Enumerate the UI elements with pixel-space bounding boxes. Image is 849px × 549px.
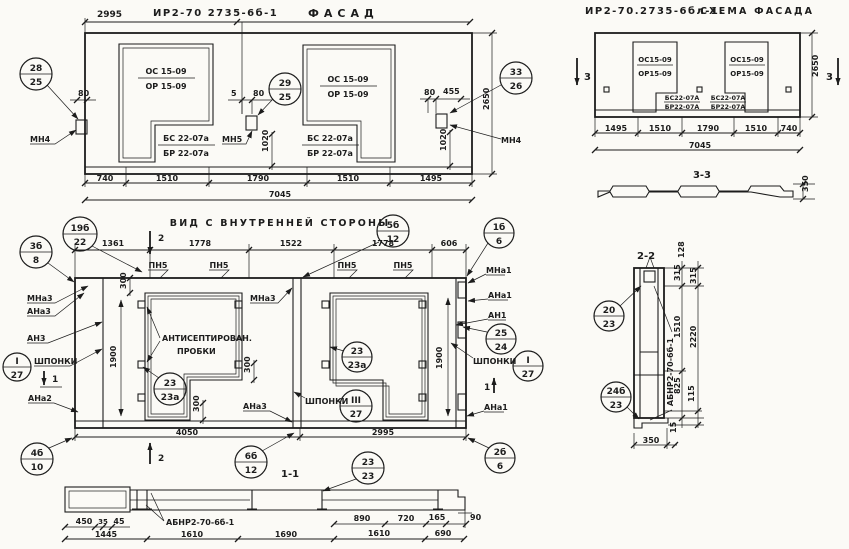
inner-dim-2995: 2995 xyxy=(372,428,395,437)
blueprint-sheet: 2995 ИР2-70 2735-6б-1 ФАСАД ОС 15-09 ОР … xyxy=(0,0,849,549)
callout-key-right: I 27 xyxy=(513,351,543,381)
schema-sill1-top: БС22-07А xyxy=(665,95,700,102)
svg-text:20: 20 xyxy=(603,306,616,316)
section2-mark-top: 2 xyxy=(158,234,164,244)
svg-text:23а: 23а xyxy=(348,361,367,371)
svg-text:6: 6 xyxy=(496,237,502,247)
dim-315-a: 315 xyxy=(673,264,682,281)
facade-sill2-mark-top: БС 22-07а xyxy=(307,134,353,143)
section-22-bar xyxy=(634,268,664,418)
dim-165: 165 xyxy=(429,513,446,522)
svg-text:I: I xyxy=(526,356,529,366)
schema-sill2-bottom: БР22-07А xyxy=(711,104,746,111)
schema-sill1-bottom: БР22-07А xyxy=(665,104,700,111)
inner-view: ВИД С ВНУТРЕННЕЙ СТОРОНЫ 1361 1778 1522 … xyxy=(3,215,543,491)
schema-win2-top: ОС15-09 xyxy=(730,56,764,64)
callout-28-25: 28 25 xyxy=(20,58,78,119)
dim-1020-right: 1020 xyxy=(439,128,448,151)
label-shponki-left: ШПОНКИ xyxy=(34,357,77,366)
dim-300-b: 300 xyxy=(243,356,252,373)
facade-top-dim: 2995 xyxy=(97,10,122,20)
facade-title: ФАСАД xyxy=(308,7,379,20)
facade-win2-mark-top: ОС 15-09 xyxy=(327,75,368,84)
dim-35: 35 xyxy=(98,518,108,526)
label-ana1-bottom: АНа1 xyxy=(484,403,508,412)
label-ana1-top: АНа1 xyxy=(488,291,512,300)
schema-anchor-1 xyxy=(604,87,609,92)
label-mna1: МНа1 xyxy=(486,266,512,275)
svg-text:23: 23 xyxy=(603,320,616,330)
inner-dim-1778a: 1778 xyxy=(189,239,212,248)
dim-128: 128 xyxy=(677,241,686,258)
facade-anchor-left-label: МН4 xyxy=(30,135,51,144)
label-ana3-mid: АНа3 xyxy=(243,402,267,411)
loop-pn5-2: ПН5 xyxy=(210,261,229,270)
facade-anchor-mid-label: МН5 xyxy=(222,135,243,144)
dim-450: 450 xyxy=(76,517,93,526)
svg-text:3б: 3б xyxy=(30,241,43,252)
label-shponki-right: ШПОНКИ xyxy=(473,357,516,366)
label-an3: АН3 xyxy=(27,334,45,343)
svg-text:10: 10 xyxy=(31,463,44,473)
svg-text:23а: 23а xyxy=(161,393,180,403)
dim-2650-facade: 2650 xyxy=(482,87,491,110)
callout-23-23a-1: 23 23а xyxy=(143,367,186,405)
svg-text:27: 27 xyxy=(350,410,363,420)
anchor-plate-right xyxy=(436,114,447,128)
dim-80-right: 80 xyxy=(424,88,436,97)
dim-720: 720 xyxy=(398,514,415,523)
facade-dim-1495: 1495 xyxy=(420,174,443,183)
loop-pn5-4: ПН5 xyxy=(394,261,413,270)
svg-text:29: 29 xyxy=(279,79,292,89)
dim-1445: 1445 xyxy=(95,530,118,539)
section-22-title: 2-2 xyxy=(637,251,655,262)
facade-window-2 xyxy=(303,45,395,162)
facade-dim-1510a: 1510 xyxy=(156,174,179,183)
label-ana3-left: АНа3 xyxy=(27,307,51,316)
dim-115: 115 xyxy=(687,385,696,402)
svg-text:28: 28 xyxy=(30,64,43,74)
svg-text:6б: 6б xyxy=(245,451,258,462)
svg-text:23: 23 xyxy=(610,401,623,411)
svg-text:19б: 19б xyxy=(71,223,90,234)
drawing-canvas: 2995 ИР2-70 2735-6б-1 ФАСАД ОС 15-09 ОР … xyxy=(0,0,849,549)
label-an1: АН1 xyxy=(488,311,507,320)
dim-1690: 1690 xyxy=(275,530,298,539)
schema-win1-top: ОС15-09 xyxy=(638,56,672,64)
schema-dim-740: 740 xyxy=(781,124,798,133)
dim-1610a: 1610 xyxy=(181,530,204,539)
anchor-plate-mid xyxy=(246,116,257,130)
dim-315-b: 315 xyxy=(689,267,698,284)
svg-text:23: 23 xyxy=(351,347,364,357)
schema-dim-7045: 7045 xyxy=(689,141,712,150)
schema-anchor-2 xyxy=(697,87,702,92)
svg-text:25: 25 xyxy=(279,93,292,103)
svg-text:12: 12 xyxy=(245,466,258,476)
facade-dim-1790: 1790 xyxy=(247,174,270,183)
dim-1900-right: 1900 xyxy=(435,346,444,369)
callout-key-left: I 27 xyxy=(3,353,31,381)
section-33-dim-350: 350 xyxy=(801,175,810,192)
section-11-mark: АБНР2-70-6б-1 xyxy=(166,517,235,527)
facade-dim-7045: 7045 xyxy=(269,190,292,199)
schema-dim-1510b: 1510 xyxy=(745,124,768,133)
svg-text:23: 23 xyxy=(164,379,177,389)
svg-text:12: 12 xyxy=(387,235,400,245)
svg-text:22: 22 xyxy=(74,238,87,248)
svg-text:26: 26 xyxy=(510,82,523,92)
label-shponki-mid: ШПОНКИ xyxy=(305,397,348,406)
schema-dim-1790: 1790 xyxy=(697,124,720,133)
facade-view: 2995 ИР2-70 2735-6б-1 ФАСАД ОС 15-09 ОР … xyxy=(20,7,532,203)
svg-text:III: III xyxy=(351,396,361,406)
dim-2220: 2220 xyxy=(689,325,698,348)
section-33-profile xyxy=(598,186,793,197)
dim-350-sec22: 350 xyxy=(643,436,660,445)
facade-win1-mark-top: ОС 15-09 xyxy=(145,67,186,76)
callout-2b-6: 2б 6 xyxy=(468,438,515,473)
dim-455: 455 xyxy=(443,87,460,96)
schema-view: ИР2-70.2735-6бл-1. СХЕМА ФАСАДА ОС15-09 … xyxy=(577,5,838,202)
section-22: 2-2 20 23 24б 23 АБНР2-70-6б-1 128 315 3… xyxy=(594,241,704,449)
section-22-mark: АБНР2-70-6б-1 xyxy=(665,337,675,406)
facade-window-1 xyxy=(119,44,213,162)
label-mna3-left: МНа3 xyxy=(27,294,53,303)
inner-dim-1522: 1522 xyxy=(280,239,302,248)
dim-1610b: 1610 xyxy=(368,529,391,538)
svg-text:I: I xyxy=(15,357,18,367)
dim-690: 690 xyxy=(435,529,452,538)
facade-dim-1510b: 1510 xyxy=(337,174,360,183)
edge-plate-3 xyxy=(458,394,466,410)
label-mna3-mid: МНа3 xyxy=(250,294,276,303)
facade-sill2-mark-bottom: БР 22-07а xyxy=(307,149,353,158)
schema-title: СХЕМА ФАСАДА xyxy=(700,6,814,17)
schema-dim-1495: 1495 xyxy=(605,124,628,133)
label-ana2: АНа2 xyxy=(28,394,52,403)
svg-text:27: 27 xyxy=(522,370,535,380)
frame-profiles xyxy=(132,490,443,509)
section2-mark-bottom: 2 xyxy=(158,454,164,464)
svg-text:33: 33 xyxy=(510,68,523,78)
section1-mark-left: 1 xyxy=(52,375,58,385)
dim-80-mid: 80 xyxy=(253,89,265,98)
svg-text:25: 25 xyxy=(30,78,43,88)
dim-80-left: 80 xyxy=(78,89,90,98)
facade-win2-mark-bottom: ОР 15-09 xyxy=(327,90,368,99)
facade-sill1-mark-bottom: БР 22-07а xyxy=(163,149,209,158)
inner-dim-1361: 1361 xyxy=(102,239,125,248)
svg-text:24: 24 xyxy=(495,343,508,353)
loop-pn5-1: ПН5 xyxy=(149,261,168,270)
schema-win1-bottom: ОР15-09 xyxy=(638,70,672,78)
dim-1900-left: 1900 xyxy=(109,345,118,368)
section-33-title: 3-3 xyxy=(693,170,711,181)
schema-anchor-3 xyxy=(786,87,791,92)
svg-text:23: 23 xyxy=(362,472,375,482)
dim-1020-mid: 1020 xyxy=(261,129,270,152)
section1-mark-right: 1 xyxy=(484,383,490,393)
schema-section-mark-right: 3 xyxy=(826,72,833,83)
inner-title: ВИД С ВНУТРЕННЕЙ СТОРОНЫ xyxy=(170,217,391,229)
note-antiseptic-2: ПРОБКИ xyxy=(177,347,216,356)
inner-dim-4050: 4050 xyxy=(176,428,199,437)
callout-25-24: 25 24 xyxy=(463,324,516,354)
dim-300-c: 300 xyxy=(192,395,201,412)
edge-plate-1 xyxy=(458,282,466,298)
schema-win2-bottom: ОР15-09 xyxy=(730,70,764,78)
section-11-title: 1-1 xyxy=(281,469,299,480)
svg-text:6: 6 xyxy=(497,462,503,472)
facade-anchor-right-label: МН4 xyxy=(501,136,522,145)
dim-890: 890 xyxy=(354,514,371,523)
callout-29-25: 29 25 xyxy=(258,73,301,115)
dim-1510-sec: 1510 xyxy=(673,315,682,338)
dim-5: 5 xyxy=(231,89,237,98)
svg-text:4б: 4б xyxy=(31,448,44,459)
schema-section-mark-left: 3 xyxy=(584,72,591,83)
facade-dim-740: 740 xyxy=(97,174,114,183)
svg-text:8: 8 xyxy=(33,256,39,266)
svg-text:27: 27 xyxy=(11,371,24,381)
facade-win1-mark-bottom: ОР 15-09 xyxy=(145,82,186,91)
svg-text:25: 25 xyxy=(495,329,508,339)
callout-33-26: 33 26 xyxy=(450,62,532,113)
schema-sill2-top: БС22-07А xyxy=(711,95,746,102)
callout-23-23: 23 23 xyxy=(323,452,384,491)
section-22-anchor xyxy=(644,271,655,282)
note-antiseptic-1: АНТИСЕПТИРОВАН. xyxy=(162,334,252,343)
facade-sill1-mark-top: БС 22-07а xyxy=(163,134,209,143)
svg-text:23: 23 xyxy=(362,458,375,468)
dim-90: 90 xyxy=(470,513,482,522)
dim-15: 15 xyxy=(669,421,678,433)
facade-mark: ИР2-70 2735-6б-1 xyxy=(153,7,278,19)
dim-825: 825 xyxy=(673,377,682,394)
svg-text:5б: 5б xyxy=(387,220,400,231)
svg-text:1б: 1б xyxy=(493,222,506,233)
schema-dim-1510a: 1510 xyxy=(649,124,672,133)
callout-key-mid: III 27 xyxy=(340,390,372,422)
loop-pn5-3: ПН5 xyxy=(338,261,357,270)
inner-dim-606: 606 xyxy=(441,239,458,248)
svg-text:2б: 2б xyxy=(494,447,507,458)
callout-4b-10: 4б 10 xyxy=(21,438,72,475)
svg-text:24б: 24б xyxy=(607,386,626,397)
section-11: 1-1 450 35 45 АБНР2-70-6б-1 890 720 165 … xyxy=(62,469,482,542)
